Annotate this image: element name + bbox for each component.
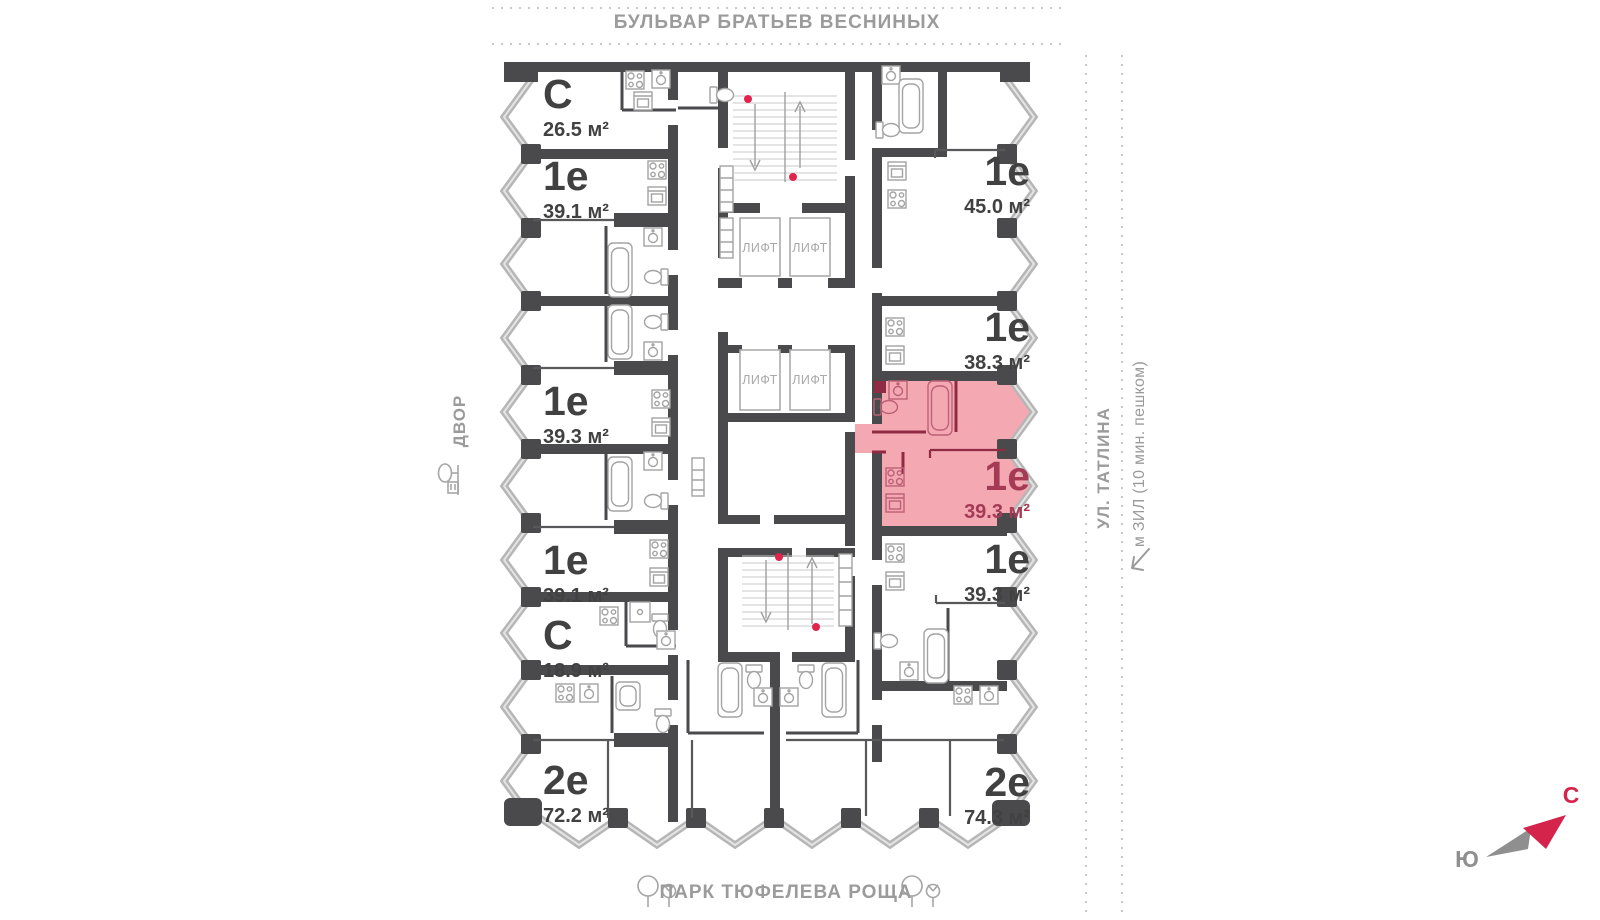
apartment-1e-39-1-bottom[interactable]: 1е 39.1 м²	[543, 540, 609, 606]
staircase-bottom	[742, 553, 834, 631]
apartment-type: 1е	[964, 307, 1030, 348]
apartment-type: 1е	[543, 381, 609, 422]
apartment-c-26-5[interactable]: С 26.5 м²	[543, 74, 609, 140]
apartment-area: 39.3 м²	[543, 427, 609, 447]
courtyard-label: ДВОР	[449, 376, 471, 466]
street-right-label: УЛ. ТАТЛИНА	[1093, 403, 1115, 533]
apartment-area: 39.1 м²	[543, 586, 609, 606]
apartment-area: 45.0 м²	[964, 197, 1030, 217]
elevator-label-3: ЛИФТ	[736, 373, 784, 387]
metro-direction-arrow	[1132, 549, 1149, 570]
apartment-2e-72-2[interactable]: 2е 72.2 м²	[543, 760, 609, 826]
compass-south-label: Ю	[1452, 846, 1482, 873]
elevator-label-1: ЛИФТ	[736, 241, 784, 255]
compass-north-label: С	[1556, 782, 1586, 809]
apartment-type: 1е	[543, 540, 609, 581]
apartment-1e-39-1-top[interactable]: 1е 39.1 м²	[543, 156, 609, 222]
apartment-1e-38-3[interactable]: 1е 38.3 м²	[964, 307, 1030, 373]
courtyard-icon	[439, 464, 459, 495]
apartment-area: 74.3 м²	[964, 808, 1030, 828]
apartment-type: 2е	[964, 762, 1030, 803]
apartment-area: 39.3 м²	[964, 502, 1030, 522]
park-label: ПАРК ТЮФЕЛЕВА РОЩА	[586, 882, 986, 904]
apartment-1e-39-3-lower[interactable]: 1е 39.3 м²	[964, 539, 1030, 605]
apartment-area: 39.3 м²	[964, 585, 1030, 605]
elevator-label-2: ЛИФТ	[786, 241, 834, 255]
staircase-top	[733, 92, 837, 182]
floorplan-svg	[0, 0, 1600, 920]
apartment-1e-39-3-left[interactable]: 1е 39.3 м²	[543, 381, 609, 447]
apartment-c-18-9[interactable]: С 18.9 м²	[543, 615, 609, 681]
apartment-area: 38.3 м²	[964, 353, 1030, 373]
apartment-2e-74-3[interactable]: 2е 74.3 м²	[964, 762, 1030, 828]
apartment-area: 26.5 м²	[543, 120, 609, 140]
apartment-area: 72.2 м²	[543, 806, 609, 826]
apartment-area: 18.9 м²	[543, 661, 609, 681]
apartment-type: 2е	[543, 760, 609, 801]
apartment-1e-45-0[interactable]: 1е 45.0 м²	[964, 151, 1030, 217]
apartment-1e-39-3-selected[interactable]: 1е 39.3 м²	[964, 456, 1030, 522]
floorplan-page: БУЛЬВАР БРАТЬЕВ ВЕСНИНЫХ ДВОР УЛ. ТАТЛИН…	[0, 0, 1600, 920]
apartment-type: С	[543, 74, 609, 115]
apartment-type: 1е	[543, 156, 609, 197]
apartment-area: 39.1 м²	[543, 202, 609, 222]
elevator-label-4: ЛИФТ	[786, 373, 834, 387]
apartment-type: 1е	[964, 539, 1030, 580]
apartment-type: 1е	[964, 151, 1030, 192]
apartment-type: С	[543, 615, 609, 656]
street-top-label: БУЛЬВАР БРАТЬЕВ ВЕСНИНЫХ	[492, 12, 1062, 34]
apartment-type: 1е	[964, 456, 1030, 497]
compass-icon	[1486, 815, 1566, 857]
metro-label: м ЗИЛ (10 мин. пешком)	[1130, 359, 1150, 549]
